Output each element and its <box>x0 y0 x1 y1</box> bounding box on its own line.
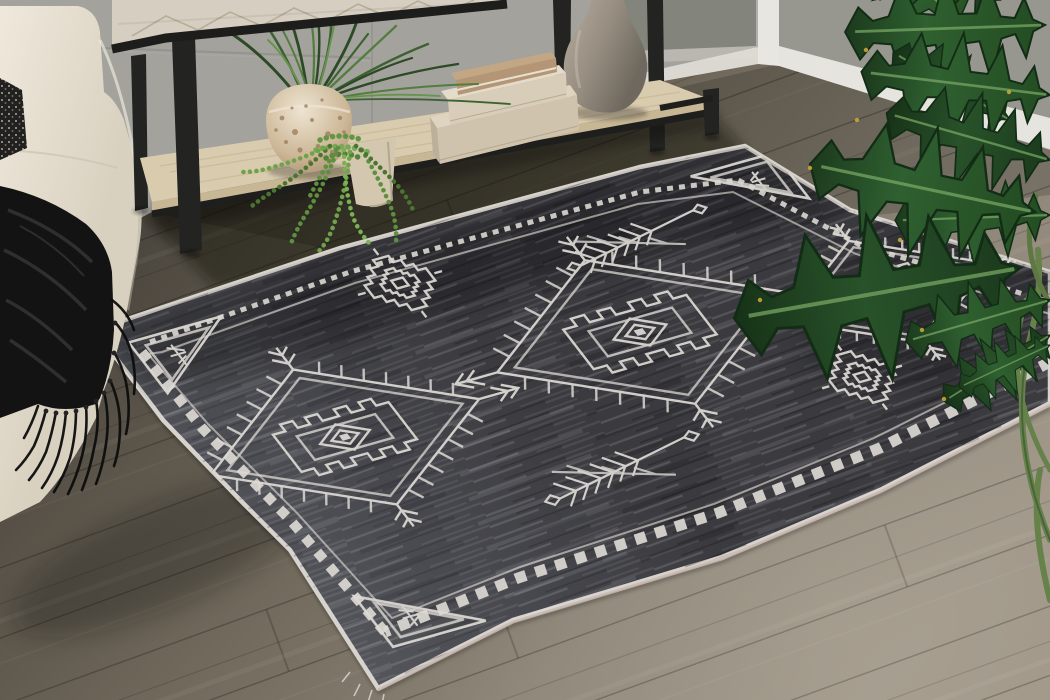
living-room-photo <box>0 0 1050 700</box>
scene-canvas <box>0 0 1050 700</box>
leg-foot-shadow <box>649 149 665 155</box>
leg-foot-shadow <box>704 134 720 140</box>
door-casing <box>756 0 779 70</box>
leg-foot-shadow <box>182 251 200 257</box>
leg-foot-shadow <box>133 208 149 214</box>
table-leg-front-right <box>703 88 719 136</box>
